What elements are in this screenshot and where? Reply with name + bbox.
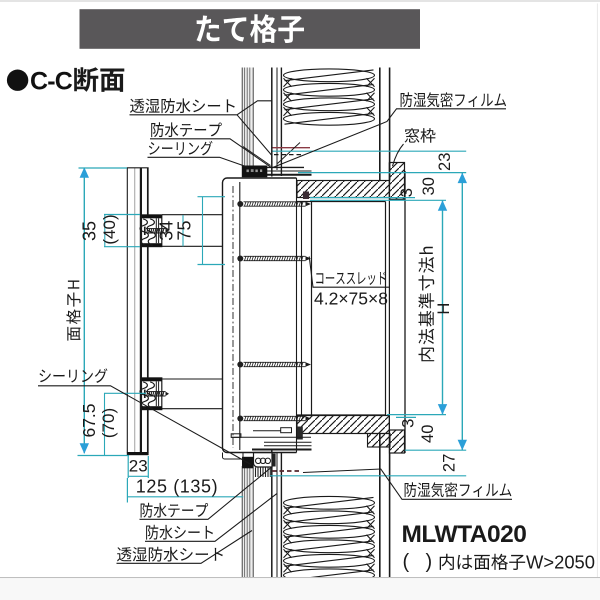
svg-text:C-C: C-C xyxy=(30,68,73,96)
svg-text:40: 40 xyxy=(419,425,437,443)
svg-text:30: 30 xyxy=(420,177,438,195)
svg-text:67.5: 67.5 xyxy=(79,403,99,437)
svg-text:): ) xyxy=(426,551,433,573)
svg-text:(: ( xyxy=(403,551,410,573)
svg-text:(70): (70) xyxy=(99,408,118,438)
svg-text:125 (135): 125 (135) xyxy=(136,477,218,497)
svg-text:35: 35 xyxy=(79,221,99,241)
svg-text:W>2050: W>2050 xyxy=(526,552,595,573)
svg-text:3: 3 xyxy=(400,419,418,428)
svg-text:27: 27 xyxy=(441,454,459,472)
svg-text:MLWTA020: MLWTA020 xyxy=(402,521,527,548)
svg-text:4.2×75×8: 4.2×75×8 xyxy=(314,289,388,309)
svg-text:H: H xyxy=(435,303,453,315)
svg-text:3: 3 xyxy=(398,188,416,197)
svg-text:75: 75 xyxy=(174,220,194,240)
svg-text:23: 23 xyxy=(129,456,148,475)
svg-text:(40): (40) xyxy=(100,214,119,244)
svg-text:23: 23 xyxy=(436,153,454,171)
svg-text:34: 34 xyxy=(156,221,176,241)
